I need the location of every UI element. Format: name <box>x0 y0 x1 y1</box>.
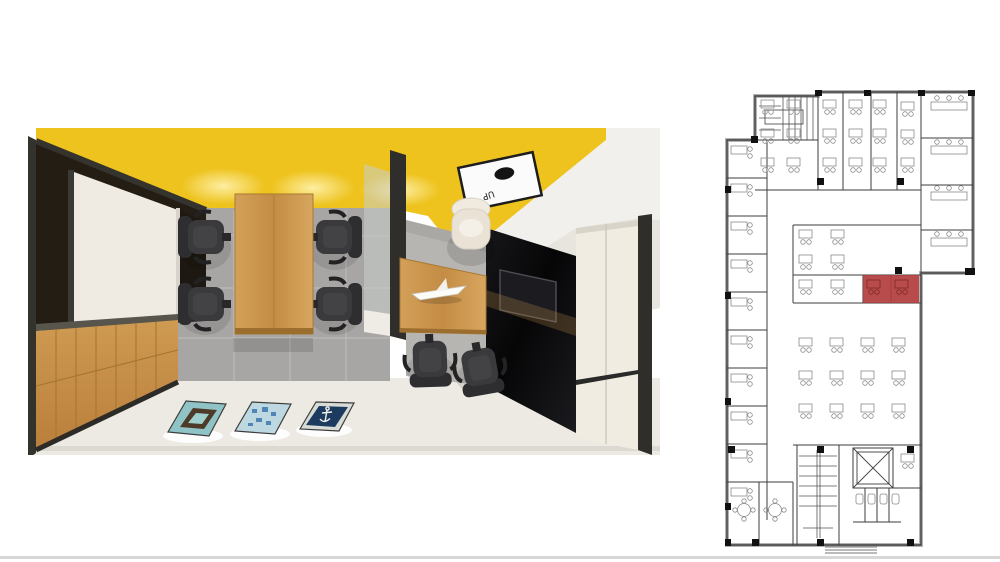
interior-render: UP <box>28 128 660 455</box>
cabinet-end-post <box>638 214 652 455</box>
highlighted-unit <box>863 275 919 303</box>
screenshot-canvas: UP <box>0 0 1000 562</box>
floor-plan <box>725 90 977 556</box>
left-wall-post <box>28 136 36 455</box>
meeting-table <box>233 194 313 352</box>
floor-posters <box>163 401 354 443</box>
plan-window-band <box>727 92 973 545</box>
bottom-divider <box>0 556 1000 559</box>
interior-render-svg: UP <box>28 128 660 455</box>
cabinet-wall <box>576 214 652 455</box>
plan-entrance-steps <box>825 547 877 553</box>
render-base-shadow <box>34 446 660 451</box>
floor-plan-svg <box>725 90 977 556</box>
executive-chair <box>452 198 490 249</box>
